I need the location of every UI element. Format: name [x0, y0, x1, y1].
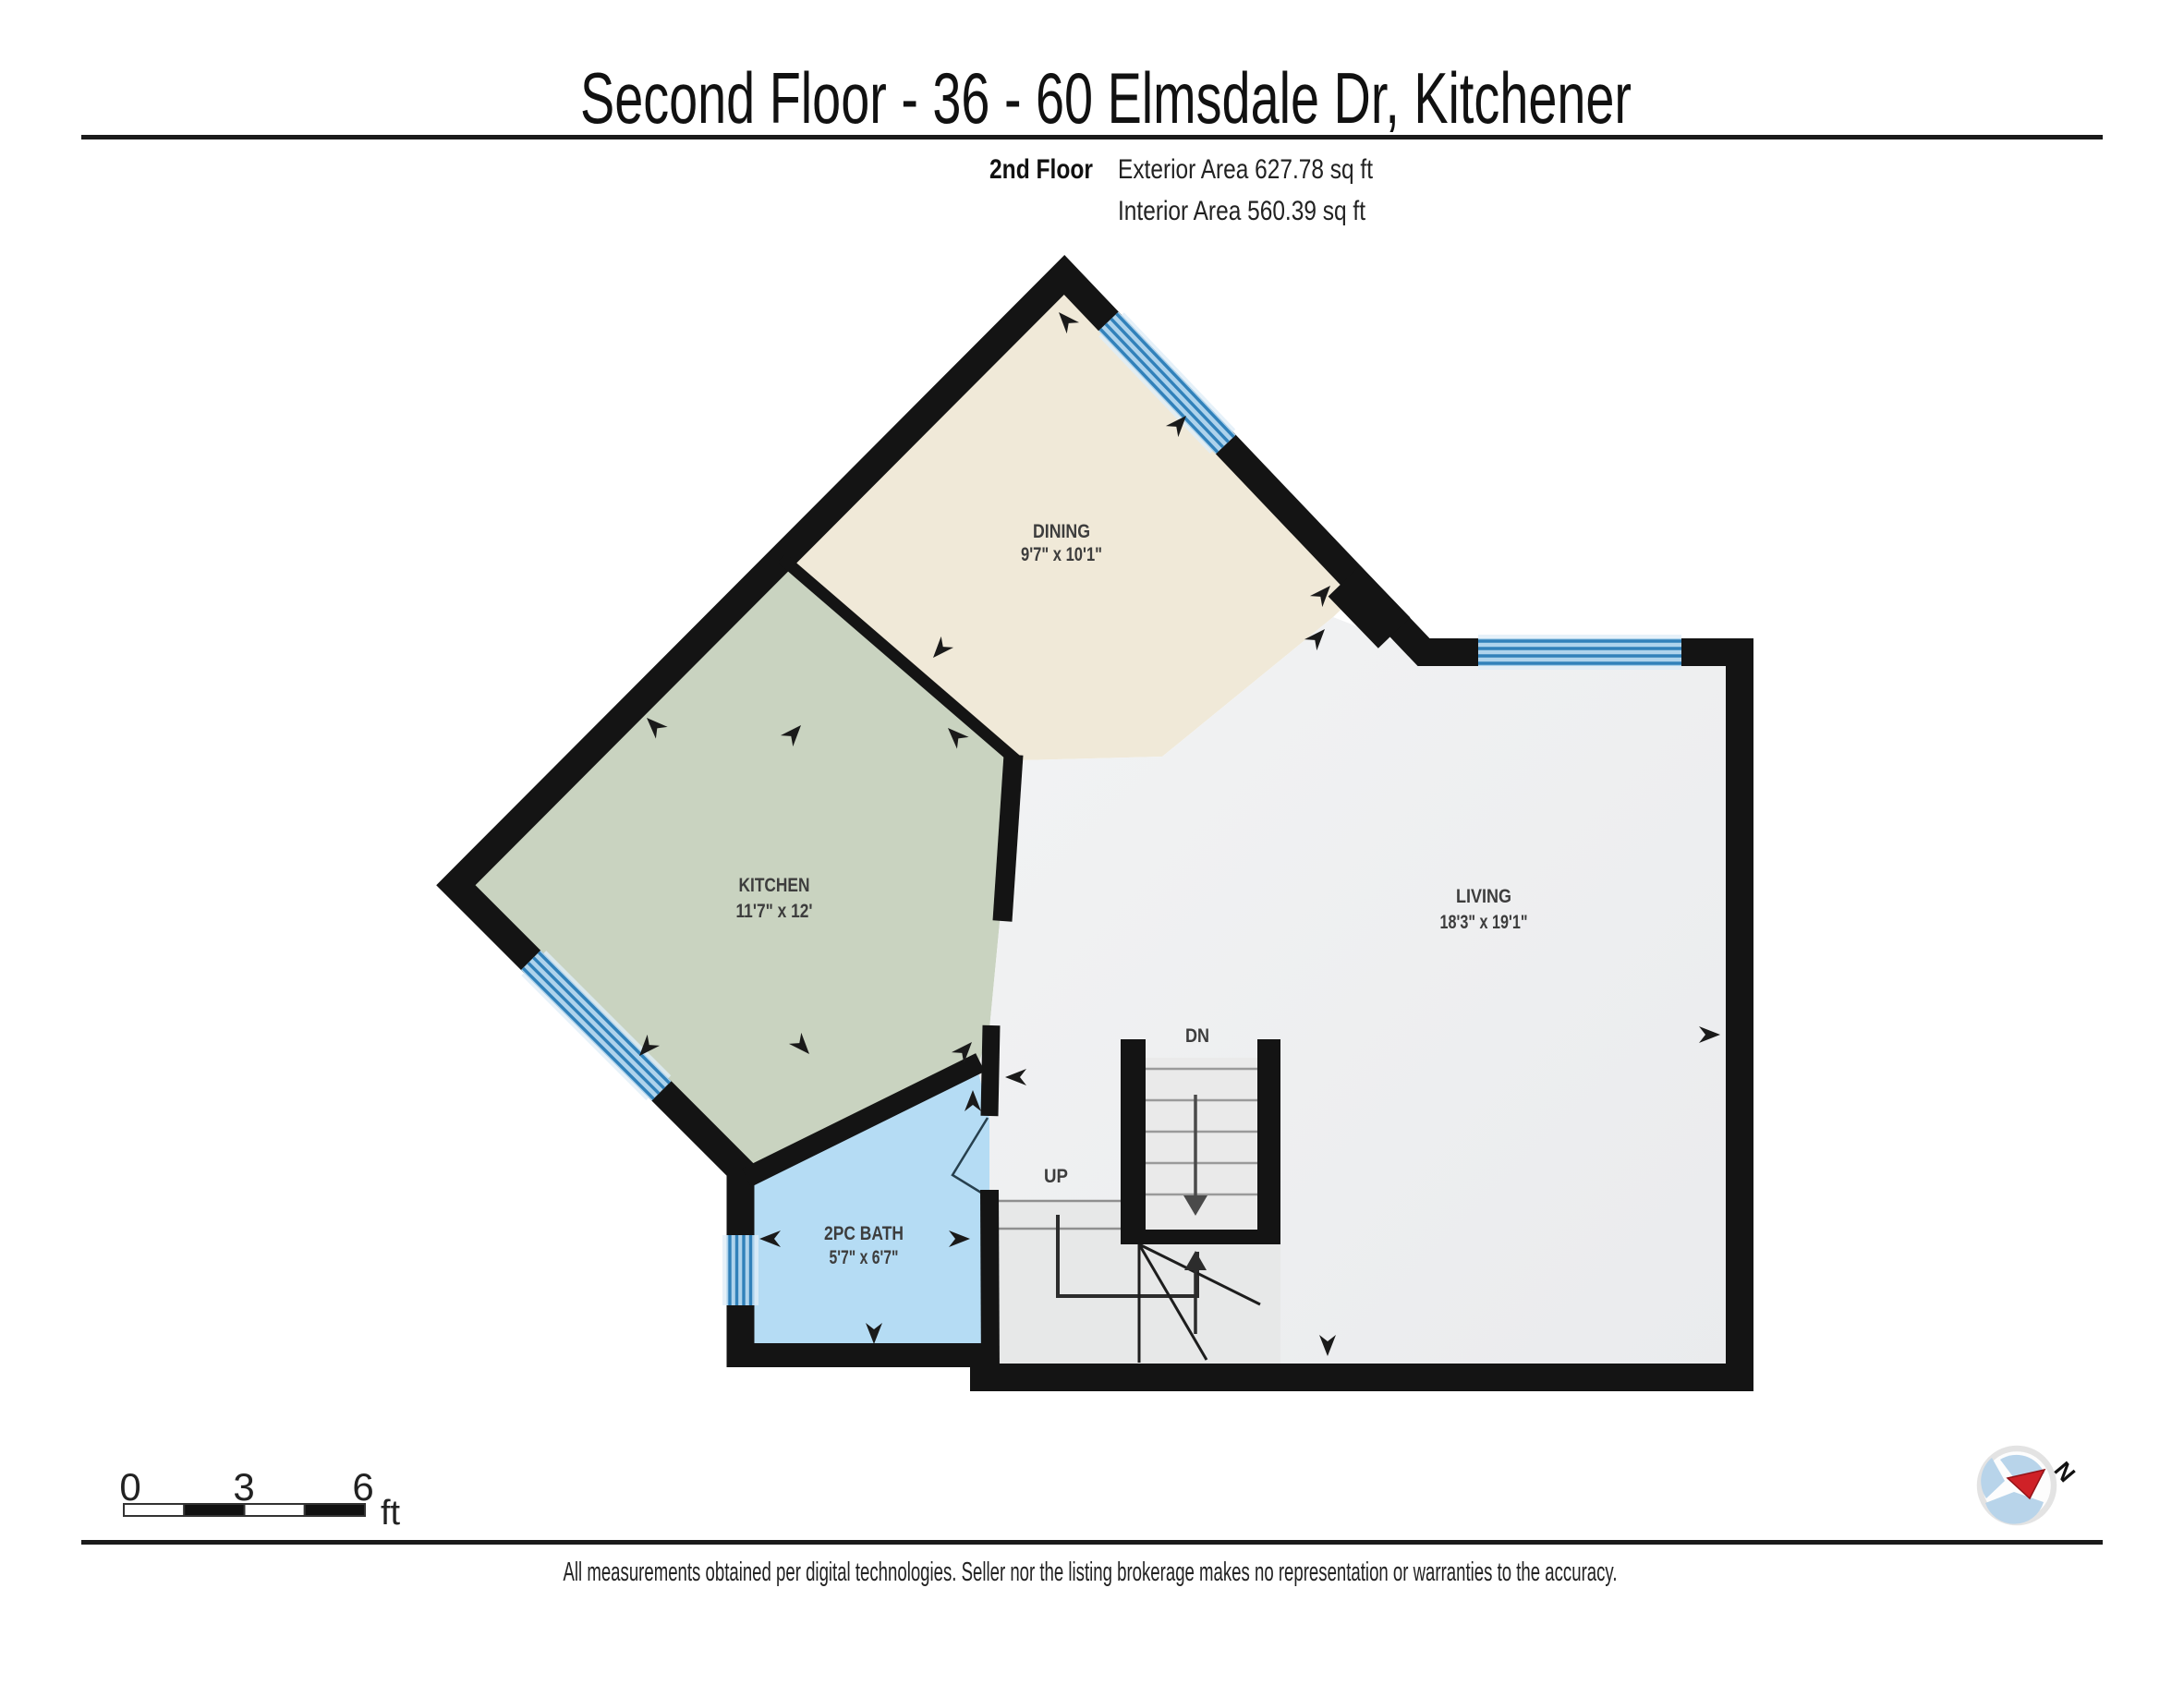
- svg-text:0: 0: [119, 1465, 140, 1509]
- svg-text:ft: ft: [381, 1494, 401, 1533]
- svg-text:5'7" x 6'7": 5'7" x 6'7": [830, 1247, 899, 1268]
- svg-text:2PC BATH: 2PC BATH: [824, 1223, 904, 1244]
- svg-text:LIVING: LIVING: [1456, 886, 1511, 907]
- svg-text:3: 3: [233, 1465, 254, 1509]
- svg-text:All measurements obtained per: All measurements obtained per digital te…: [564, 1558, 1618, 1587]
- svg-text:Exterior Area 627.78 sq ft: Exterior Area 627.78 sq ft: [1118, 154, 1374, 185]
- svg-text:DN: DN: [1185, 1025, 1209, 1047]
- svg-text:6: 6: [352, 1465, 373, 1509]
- svg-text:KITCHEN: KITCHEN: [739, 875, 810, 896]
- svg-text:9'7" x 10'1": 9'7" x 10'1": [1021, 544, 1102, 565]
- svg-text:Second Floor - 36 - 60 Elmsdal: Second Floor - 36 - 60 Elmsdale Dr, Kitc…: [580, 57, 1632, 139]
- svg-text:18'3" x 19'1": 18'3" x 19'1": [1440, 912, 1528, 933]
- svg-text:Interior Area 560.39 sq ft: Interior Area 560.39 sq ft: [1118, 196, 1366, 226]
- svg-text:2nd Floor: 2nd Floor: [989, 154, 1093, 185]
- svg-text:DINING: DINING: [1033, 521, 1090, 542]
- svg-text:11'7" x 12': 11'7" x 12': [736, 901, 813, 922]
- svg-text:UP: UP: [1044, 1166, 1068, 1187]
